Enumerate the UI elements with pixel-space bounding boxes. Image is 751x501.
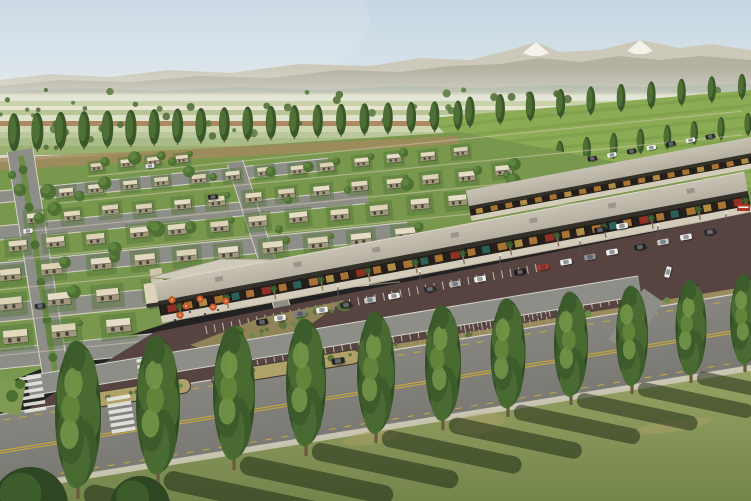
island-shrub (265, 327, 269, 331)
house-window (17, 337, 21, 341)
umbrella-pole-top (171, 299, 173, 301)
house (417, 148, 439, 166)
estate-tree-highlight (48, 203, 56, 211)
yard-tree-highlight (509, 159, 517, 167)
canopy-highlight (559, 311, 573, 332)
yard-tree-highlight (188, 151, 191, 154)
canopy-highlight (61, 394, 79, 424)
canopy-highlight (64, 368, 82, 398)
house-window (60, 300, 63, 304)
distant-tree (305, 90, 310, 95)
house-window (183, 159, 185, 161)
estate-tree-highlight (304, 162, 310, 168)
house-window (317, 192, 320, 195)
distant-tree (368, 109, 376, 117)
yard-tree-highlight (329, 234, 332, 237)
distant-tree (443, 89, 451, 97)
canopy-highlight (623, 339, 636, 359)
poplar-highlight (125, 112, 133, 139)
house-window (249, 199, 252, 202)
house (418, 170, 444, 190)
distant-tree (71, 101, 75, 105)
house-window (45, 270, 48, 274)
house-window (355, 240, 358, 244)
poplar-highlight (583, 139, 588, 158)
estate-tree-highlight (41, 185, 50, 194)
canopy-tip (151, 338, 165, 364)
canopy-highlight (146, 385, 164, 413)
house-window (429, 157, 431, 160)
house (99, 312, 137, 341)
canopy-highlight (735, 307, 747, 325)
house-window (200, 179, 202, 182)
house-window (67, 217, 70, 220)
house-window (396, 184, 399, 187)
house-window (341, 215, 344, 218)
house-window (299, 170, 301, 173)
house-window (312, 244, 315, 248)
umbrella-pole-top (185, 305, 187, 307)
house-window (62, 193, 64, 196)
house-window (178, 205, 181, 208)
house (81, 228, 110, 251)
poplar-highlight (32, 115, 40, 144)
canopy-highlight (145, 361, 163, 389)
umbrella-pole-top (179, 314, 181, 316)
light-pole-head (579, 239, 581, 241)
canopy-highlight (219, 397, 236, 424)
poplar-highlight (587, 88, 593, 109)
canopy-highlight (363, 355, 378, 380)
house-window (221, 227, 224, 230)
light-pole-head (499, 254, 501, 256)
house-window (145, 209, 148, 212)
canopy-highlight (362, 377, 377, 402)
house-window (50, 243, 53, 246)
house-window (52, 300, 55, 304)
poplar-highlight (465, 99, 471, 122)
house-window (181, 257, 184, 261)
house-window (361, 186, 364, 189)
poplar-highlight (149, 112, 157, 139)
canopy-highlight (430, 347, 444, 371)
house-window (56, 242, 59, 245)
poplar-highlight (430, 103, 436, 125)
house-window (229, 253, 232, 257)
estate-tree-highlight (34, 213, 40, 219)
canopy-highlight (142, 409, 160, 437)
yard-tree-highlight (129, 152, 137, 160)
house-window (93, 168, 95, 170)
canopy-tip (566, 294, 577, 313)
umbrella-pole-top (199, 298, 201, 300)
canopy-highlight (735, 291, 747, 309)
island-shrub (330, 309, 334, 313)
house-window (274, 248, 277, 252)
canopy-highlight (622, 322, 635, 342)
house-window (98, 167, 100, 169)
house-window (293, 218, 296, 221)
house-window (322, 191, 325, 194)
house-window (157, 182, 159, 185)
estate-tree-highlight (266, 167, 272, 173)
light-pole-head (657, 224, 659, 226)
house-window (228, 176, 230, 179)
poplar-highlight (313, 107, 320, 131)
poplar-highlight (102, 113, 110, 140)
house-window (259, 222, 262, 225)
yard-tree-highlight (399, 148, 405, 154)
poplar-highlight (556, 91, 562, 113)
distant-tree (162, 113, 170, 121)
canopy-highlight (562, 329, 576, 350)
pedestrian (189, 311, 191, 313)
canopy-highlight (220, 374, 237, 401)
house-window (12, 275, 15, 279)
house-window (294, 171, 296, 174)
canopy-tip (370, 315, 382, 337)
house (0, 323, 35, 352)
poplar-highlight (691, 122, 696, 140)
canopy-highlight (620, 304, 633, 324)
umbrella-pole-top (225, 300, 227, 302)
house-window (328, 167, 330, 170)
estate-tree-highlight (507, 174, 515, 182)
house-window (357, 163, 359, 166)
distant-tree (117, 121, 124, 128)
house-window (96, 239, 99, 242)
house-window (131, 185, 133, 188)
house (3, 235, 32, 258)
house-window (373, 211, 376, 214)
house-window (123, 164, 125, 166)
house-window (178, 230, 181, 233)
canopy-tip (686, 282, 696, 299)
poplar-highlight (79, 114, 87, 142)
house-window (255, 198, 258, 201)
estate-tree-highlight (15, 185, 22, 192)
yard-tree-highlight (157, 152, 162, 157)
poplar-highlight (219, 110, 226, 136)
house-window (4, 276, 7, 280)
house-window (109, 296, 112, 300)
canopy-tip (227, 329, 240, 353)
car-glass (148, 164, 152, 167)
house-window (127, 163, 129, 165)
house-window (134, 233, 137, 236)
yard-tree-highlight (368, 153, 372, 157)
house-window (91, 189, 93, 192)
estate-tree-highlight (504, 172, 508, 176)
canopy-tip (437, 308, 449, 329)
estate-tree-highlight (184, 167, 190, 173)
canopy-highlight (682, 298, 694, 317)
poplar-highlight (172, 111, 179, 137)
distant-tree (133, 102, 138, 107)
canopy-tip (71, 344, 86, 371)
distant-tree (209, 132, 217, 140)
distant-tree (157, 106, 163, 112)
pedestrian (204, 313, 206, 315)
house-window (95, 265, 98, 269)
house (284, 207, 313, 230)
distant-tree (461, 87, 466, 92)
house (131, 199, 157, 219)
house-window (462, 177, 465, 180)
house-window (212, 202, 215, 205)
house (119, 176, 141, 194)
yard-tree-highlight (99, 177, 107, 185)
house-window (457, 152, 459, 155)
house-window (53, 270, 56, 274)
yard-tree-highlight (415, 223, 421, 229)
house-window (426, 180, 429, 183)
poplar-highlight (196, 110, 203, 136)
house-window (214, 228, 217, 231)
house-window (468, 177, 471, 180)
distant-tree (36, 107, 41, 112)
poplar-highlight (55, 114, 63, 142)
house-window (171, 230, 174, 233)
yard-tree-highlight (60, 257, 67, 264)
house-window (281, 195, 284, 198)
house (41, 232, 70, 255)
monument-sign-text-bar (739, 206, 749, 208)
yard-tree-highlight (68, 286, 76, 294)
estate-tree-highlight (276, 226, 281, 231)
poplar-highlight (617, 86, 623, 107)
house-window (334, 216, 337, 219)
house (222, 167, 244, 185)
yard-tree-highlight (473, 166, 478, 171)
estate-tree-highlight (9, 171, 14, 176)
house (325, 204, 354, 227)
house-window (432, 180, 435, 183)
distant-tree (44, 88, 48, 92)
canopy-highlight (296, 364, 312, 390)
canopy-highlight (737, 322, 749, 340)
poplar-highlight (290, 107, 297, 132)
distant-tree (25, 107, 29, 111)
distant-tree (54, 146, 59, 151)
house-window (12, 247, 15, 250)
distant-tree (284, 104, 292, 112)
island-shrub (249, 333, 254, 338)
canopy-highlight (495, 338, 509, 360)
canopy-highlight (680, 314, 692, 333)
house-window (267, 249, 270, 253)
house-window (183, 205, 186, 208)
car-glass (37, 304, 42, 308)
house-window (8, 338, 12, 342)
house (59, 206, 85, 226)
canopy-highlight (494, 357, 508, 379)
poplar-highlight (243, 109, 250, 134)
house (0, 291, 29, 318)
poplar-highlight (637, 130, 642, 148)
house-window (146, 260, 149, 264)
house-window (12, 304, 15, 308)
pedestrian (174, 319, 176, 321)
umbrella-pole-top (212, 306, 214, 308)
canopy-tip (502, 301, 513, 321)
house-window (452, 201, 455, 204)
house-window (19, 246, 22, 249)
house (365, 200, 394, 223)
house-window (56, 332, 60, 336)
house-window (120, 326, 124, 330)
house-window (459, 201, 462, 204)
poplar-highlight (496, 96, 502, 118)
estate-tree-highlight (210, 174, 214, 178)
house-window (90, 240, 93, 243)
distant-tree (44, 145, 49, 150)
house-window (188, 256, 191, 260)
distant-tree (187, 103, 195, 111)
house (0, 263, 27, 288)
poplar-highlight (526, 93, 532, 115)
light-pole-head (337, 285, 339, 287)
poplar-highlight (610, 134, 615, 153)
house-window (362, 162, 364, 165)
house-window (139, 261, 142, 265)
house-window (319, 243, 322, 247)
house-window (73, 216, 76, 219)
canopy-highlight (221, 351, 238, 378)
poplar-highlight (454, 103, 460, 125)
house-window (101, 296, 104, 300)
yard-tree-highlight (333, 158, 338, 163)
estate-tree-highlight (75, 192, 81, 198)
house (170, 195, 196, 215)
house (347, 177, 373, 197)
light-pole-head (725, 212, 727, 214)
canopy-highlight (560, 347, 574, 368)
yard-tree-highlight (283, 237, 288, 242)
house-window (65, 331, 69, 335)
house (243, 211, 272, 234)
estate-tree-highlight (285, 196, 290, 201)
canopy-highlight (679, 331, 691, 350)
canopy-highlight (291, 386, 307, 412)
canopy-tip (740, 276, 750, 293)
house-window (395, 159, 397, 162)
light-pole-head (419, 270, 421, 272)
verge-tree (6, 390, 18, 402)
house-window (299, 218, 302, 221)
house-window (105, 211, 108, 214)
house-window (424, 157, 426, 160)
pedestrian (217, 309, 219, 311)
house-window (234, 176, 236, 179)
canopy-tip (627, 288, 637, 306)
house-window (414, 205, 417, 208)
estate-tree-highlight (402, 179, 409, 186)
poplar-highlight (383, 105, 389, 128)
distant-tree (83, 106, 88, 111)
aerial-render-masterplan-community (0, 0, 751, 501)
canopy-highlight (496, 319, 510, 341)
house (90, 282, 125, 309)
house-window (102, 264, 105, 268)
house-window (380, 211, 383, 214)
distant-tree (508, 93, 516, 101)
canopy-highlight (293, 342, 309, 368)
distant-tree (232, 128, 236, 132)
yard-tree-highlight (77, 321, 81, 325)
poplar-highlight (738, 76, 743, 95)
estate-tree-highlight (344, 187, 348, 191)
poplar-highlight (266, 108, 273, 133)
yard-tree-highlight (229, 217, 233, 221)
house-window (218, 202, 221, 205)
house-window (30, 219, 33, 222)
house-window (139, 210, 142, 213)
house-window (96, 189, 98, 192)
house-window (390, 159, 392, 162)
estate-tree-highlight (150, 222, 159, 231)
house-window (4, 305, 7, 309)
poplar-highlight (8, 116, 16, 145)
house (97, 200, 123, 220)
house-window (421, 205, 424, 208)
poplar-highlight (407, 104, 413, 127)
canopy-tip (300, 321, 313, 344)
poplar-highlight (647, 83, 653, 103)
house-window (162, 182, 164, 185)
distant-tree (5, 97, 10, 102)
house (150, 173, 172, 191)
scene-canvas (0, 0, 751, 501)
house-window (126, 186, 128, 189)
poplar-highlight (745, 114, 750, 131)
car-glass (210, 195, 215, 199)
house-window (390, 184, 393, 187)
house-window (67, 193, 69, 196)
poplar-highlight (336, 106, 343, 130)
poplar-highlight (718, 118, 723, 135)
car-glass (26, 229, 31, 233)
house-window (154, 161, 156, 163)
poplar-highlight (360, 105, 367, 128)
house (309, 181, 335, 201)
house-window (195, 180, 197, 183)
house-window (499, 171, 502, 174)
yard-tree-highlight (101, 158, 107, 164)
estate-tree-highlight (169, 158, 174, 163)
house-window (355, 187, 358, 190)
house-window (252, 222, 255, 225)
distant-tree (106, 88, 113, 95)
house (55, 184, 77, 202)
house-window (260, 172, 262, 175)
house-window (462, 152, 464, 155)
house-window (323, 168, 325, 171)
island-shrub (259, 332, 263, 336)
estate-tree-highlight (109, 243, 117, 251)
poplar-highlight (708, 78, 713, 97)
distant-tree (333, 96, 341, 104)
house-window (140, 233, 143, 236)
verge-tree (15, 379, 25, 389)
island-shrub (291, 321, 297, 327)
house-window (111, 327, 115, 331)
poplar-highlight (678, 81, 684, 101)
house (406, 194, 435, 217)
house-window (222, 254, 225, 258)
yard-tree-highlight (224, 192, 228, 196)
canopy-highlight (366, 334, 381, 359)
